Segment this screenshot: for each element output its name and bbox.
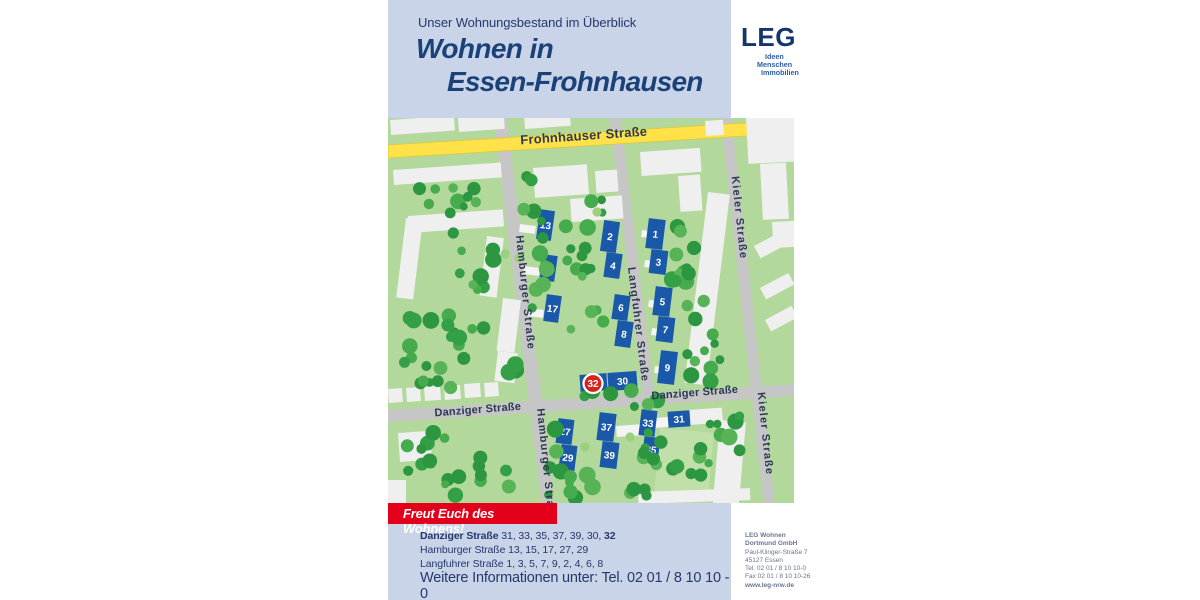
tree bbox=[455, 268, 465, 278]
tree bbox=[460, 203, 468, 211]
tree bbox=[735, 412, 744, 421]
contact-line: Fax 02 01 / 8 10 10-26 bbox=[745, 573, 810, 581]
tree bbox=[440, 433, 450, 443]
contact-line: www.leg-nrw.de bbox=[745, 582, 810, 590]
tree bbox=[441, 319, 454, 332]
tree bbox=[413, 182, 426, 195]
map-building-3: 3 bbox=[649, 249, 669, 275]
tree bbox=[537, 217, 546, 226]
tree bbox=[448, 488, 463, 503]
tree bbox=[448, 227, 459, 238]
bush bbox=[500, 249, 509, 258]
tree bbox=[624, 383, 639, 398]
contact-line: Tel. 02 01 / 8 10 10-0 bbox=[745, 565, 810, 573]
bush bbox=[625, 432, 634, 441]
tree bbox=[471, 197, 481, 207]
tree bbox=[586, 264, 595, 273]
tree bbox=[584, 479, 601, 496]
header: Unser Wohnungsbestand im Überblick Wohne… bbox=[388, 0, 731, 118]
tree bbox=[469, 280, 478, 289]
tree bbox=[647, 452, 660, 465]
tree bbox=[597, 315, 609, 327]
map-building-7: 7 bbox=[656, 316, 676, 343]
tree bbox=[535, 277, 551, 293]
tree bbox=[698, 295, 710, 307]
tree bbox=[500, 465, 512, 477]
tree bbox=[421, 361, 431, 371]
info-line: Weitere Informationen unter: Tel. 02 01 … bbox=[420, 570, 731, 600]
tree bbox=[578, 272, 587, 281]
tree bbox=[682, 349, 692, 359]
contact-block: LEG WohnenDortmund GmbHPaul-Klinger-Stra… bbox=[745, 532, 810, 590]
street-line-part: Hamburger Straße bbox=[420, 544, 505, 556]
tree bbox=[532, 245, 548, 261]
street-line: Danziger Straße 31, 33, 35, 37, 39, 30, … bbox=[420, 529, 615, 543]
tree bbox=[537, 232, 549, 244]
building-number: 29 bbox=[562, 453, 575, 465]
site-map: 1315172468135793027293739333531 Frohnhau… bbox=[388, 118, 794, 503]
tree bbox=[670, 459, 685, 474]
bush bbox=[592, 207, 601, 216]
tree bbox=[446, 331, 457, 342]
badge-number: 32 bbox=[587, 379, 599, 390]
footer: Freut Euch des Wohnens! Danziger Straße … bbox=[388, 503, 731, 600]
address-list: Danziger Straße 31, 33, 35, 37, 39, 30, … bbox=[420, 529, 615, 571]
building-number: 17 bbox=[546, 303, 559, 316]
map-building-5: 5 bbox=[652, 286, 672, 317]
tree bbox=[457, 352, 470, 365]
bush bbox=[580, 442, 589, 451]
tree bbox=[539, 261, 555, 277]
tree bbox=[683, 367, 699, 383]
tree bbox=[585, 305, 598, 318]
tree bbox=[682, 300, 693, 311]
tree bbox=[644, 428, 653, 437]
tree bbox=[566, 244, 575, 253]
tree bbox=[687, 241, 701, 255]
tree bbox=[579, 242, 592, 255]
tree bbox=[486, 243, 500, 257]
building-number: 39 bbox=[603, 450, 616, 462]
tree bbox=[584, 194, 598, 208]
page-title-line1: Wohnen in bbox=[416, 33, 553, 65]
tree bbox=[688, 312, 702, 326]
tree bbox=[567, 325, 576, 334]
tree bbox=[416, 444, 426, 454]
tree bbox=[704, 361, 719, 376]
tree bbox=[713, 420, 721, 428]
tree bbox=[448, 183, 458, 193]
tree bbox=[579, 219, 596, 236]
tree bbox=[630, 402, 639, 411]
page-title-line2: Essen-Frohnhausen bbox=[447, 66, 703, 98]
tree bbox=[669, 275, 681, 287]
tree bbox=[467, 324, 477, 334]
tree bbox=[562, 256, 572, 266]
map-highlight-badge: 32 bbox=[584, 374, 603, 393]
tree bbox=[444, 381, 457, 394]
contact-line: Paul-Klinger-Straße 7 bbox=[745, 549, 810, 557]
leg-logo: LEG bbox=[741, 22, 796, 53]
tree bbox=[700, 346, 709, 355]
tree bbox=[425, 458, 436, 469]
street-line-part: 31, 33, 35, 37, 39, 30, bbox=[498, 530, 604, 542]
tree bbox=[682, 266, 696, 280]
tree bbox=[477, 321, 490, 334]
tree bbox=[559, 219, 573, 233]
tree bbox=[704, 459, 712, 467]
tree bbox=[425, 425, 441, 441]
tree bbox=[418, 376, 429, 387]
tree bbox=[707, 328, 719, 340]
tree bbox=[525, 174, 537, 186]
tree bbox=[402, 338, 418, 354]
header-eyebrow: Unser Wohnungsbestand im Überblick bbox=[418, 15, 636, 30]
map-building-39: 39 bbox=[599, 441, 619, 469]
tree bbox=[734, 444, 746, 456]
street-line-part: 32 bbox=[604, 530, 615, 542]
tree bbox=[403, 466, 413, 476]
tree bbox=[406, 313, 422, 329]
tree bbox=[694, 442, 707, 455]
tree bbox=[473, 451, 487, 465]
tree bbox=[716, 355, 725, 364]
contact-line: 45127 Essen bbox=[745, 557, 810, 565]
housing-flyer: Unser Wohnungsbestand im Überblick Wohne… bbox=[0, 0, 1200, 600]
tree bbox=[441, 480, 449, 488]
tree bbox=[564, 485, 578, 499]
street-line: Langfuhrer Straße 1, 3, 5, 7, 9, 2, 4, 6… bbox=[420, 557, 615, 571]
tree bbox=[690, 356, 700, 366]
tree bbox=[507, 356, 524, 373]
tree bbox=[517, 203, 530, 216]
tree bbox=[597, 195, 606, 204]
map-building-37: 37 bbox=[596, 412, 616, 442]
street-line-part: Danziger Straße bbox=[420, 530, 498, 542]
leg-logo-tagline: IdeenMenschenImmobilien bbox=[752, 53, 799, 78]
tree bbox=[603, 386, 618, 401]
tree bbox=[674, 225, 687, 238]
tree bbox=[654, 435, 667, 448]
contact-line: Dortmund GmbH bbox=[745, 540, 810, 548]
map-building-1: 1 bbox=[645, 218, 666, 250]
contact-line: LEG Wohnen bbox=[745, 532, 810, 540]
street-line-part: Langfuhrer Straße bbox=[420, 558, 504, 570]
slogan-banner: Freut Euch des Wohnens! bbox=[388, 503, 557, 524]
tree bbox=[445, 208, 456, 219]
logo-column: LEG IdeenMenschenImmobilien bbox=[734, 0, 794, 118]
tree bbox=[430, 184, 440, 194]
building-number: 37 bbox=[600, 422, 613, 434]
tree bbox=[669, 248, 683, 262]
building-number: 31 bbox=[673, 414, 685, 426]
tree bbox=[399, 357, 410, 368]
tree bbox=[639, 484, 651, 496]
tree bbox=[401, 439, 414, 452]
tree bbox=[710, 340, 718, 348]
tree bbox=[721, 429, 738, 446]
street-line-part: 13, 15, 17, 27, 29 bbox=[505, 544, 588, 556]
tree bbox=[424, 199, 434, 209]
tree bbox=[502, 480, 516, 494]
tree bbox=[457, 247, 466, 256]
street-line-part: 1, 3, 5, 7, 9, 2, 4, 6, 8 bbox=[504, 558, 604, 570]
street-line: Hamburger Straße 13, 15, 17, 27, 29 bbox=[420, 543, 615, 557]
tree bbox=[564, 470, 577, 483]
tree bbox=[434, 361, 448, 375]
map-building-31: 31 bbox=[667, 410, 690, 427]
tree bbox=[475, 469, 487, 481]
tree bbox=[467, 182, 480, 195]
tagline-word: Immobilien bbox=[761, 69, 799, 77]
tree bbox=[423, 312, 440, 329]
tree bbox=[694, 469, 707, 482]
tree bbox=[432, 375, 444, 387]
